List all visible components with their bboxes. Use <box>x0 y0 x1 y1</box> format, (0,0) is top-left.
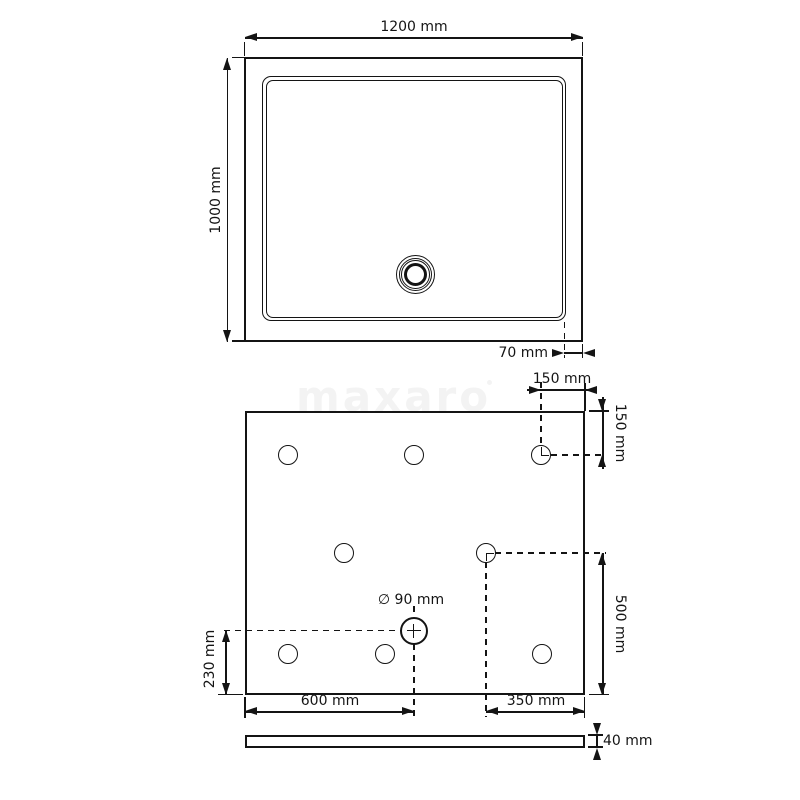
dim-corner-offset-y-label: 150 mm <box>610 398 628 468</box>
arrowhead-down-icon <box>598 399 606 411</box>
support-foot <box>278 445 298 465</box>
dimension-line <box>602 553 604 695</box>
dim-width-label: 1200 mm <box>334 19 494 35</box>
extension-line <box>584 383 586 411</box>
drain-top-view <box>396 255 435 294</box>
dim-support-offset-x-label: 350 mm <box>486 693 586 709</box>
arrowhead-up-icon <box>598 455 606 467</box>
dim-thickness-label: 40 mm <box>603 733 653 749</box>
support-foot <box>532 644 552 664</box>
extension-line <box>244 42 246 56</box>
support-foot <box>278 644 298 664</box>
arrowhead-down-icon <box>593 723 601 735</box>
arrowhead-left-icon <box>245 33 257 41</box>
arrowhead-up-icon <box>593 748 601 760</box>
dimension-line <box>245 711 414 713</box>
extension-line <box>584 697 586 718</box>
arrowhead-right-icon <box>571 33 583 41</box>
center-mark <box>486 553 487 561</box>
arrowhead-up-icon <box>223 58 231 70</box>
centerline-dashed <box>495 552 606 553</box>
arrowhead-up-icon <box>222 630 230 642</box>
dim-corner-offset-x-label: 150 mm <box>512 371 612 387</box>
dim-drain-diameter-label: ∅ 90 mm <box>361 592 461 608</box>
arrowhead-left-icon <box>583 349 595 357</box>
dim-drain-offset-y-label: 230 mm <box>202 619 220 699</box>
arrowhead-right-icon <box>402 707 414 715</box>
dimension-line <box>227 58 229 342</box>
extension-line <box>232 57 244 59</box>
extension-line <box>232 340 244 342</box>
tray-side-profile <box>245 735 585 748</box>
dim-height-label: 1000 mm <box>208 160 226 240</box>
arrowhead-up-icon <box>598 553 606 565</box>
center-mark <box>413 624 414 638</box>
center-mark <box>486 553 494 554</box>
dim-rim-label: 70 mm <box>478 345 548 361</box>
brand-watermark: maxaro <box>296 372 496 416</box>
shower-tray-dimension-drawing: maxaro 1200 mm 1000 mm <box>0 0 800 800</box>
arrowhead-right-icon <box>529 386 541 394</box>
dimension-line <box>564 352 583 354</box>
support-foot <box>334 543 354 563</box>
extension-line <box>582 42 584 56</box>
arrowhead-left-icon <box>486 707 498 715</box>
dim-support-offset-y-label: 500 mm <box>610 584 628 664</box>
support-foot <box>404 445 424 465</box>
arrowhead-down-icon <box>223 330 231 342</box>
extension-line <box>589 694 609 696</box>
dim-drain-offset-x-label: 600 mm <box>280 693 380 709</box>
brand-watermark-registered-dot <box>487 380 492 385</box>
arrowhead-left-icon <box>585 386 597 394</box>
centerline-dashed <box>413 644 414 717</box>
arrowhead-right-icon <box>552 349 564 357</box>
extension-line <box>589 410 609 412</box>
center-mark <box>541 455 549 456</box>
centerline-dashed <box>224 630 401 631</box>
dimension-line <box>245 37 583 39</box>
arrowhead-left-icon <box>245 707 257 715</box>
support-foot <box>375 644 395 664</box>
centerline-dashed <box>413 606 414 617</box>
dimension-line <box>596 735 598 748</box>
extension-line <box>218 694 243 696</box>
extension-line <box>244 697 246 718</box>
dimension-line <box>486 711 585 713</box>
